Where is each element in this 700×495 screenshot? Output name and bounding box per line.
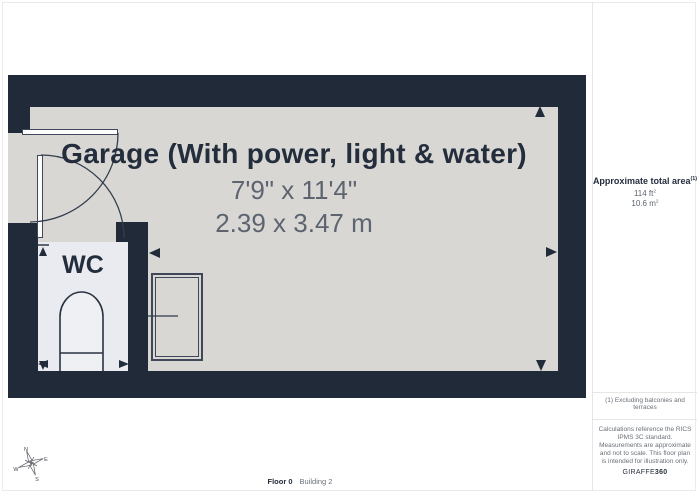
window [151,273,203,361]
footnote-divider-bottom [593,419,697,420]
brand-logo: GIRAFFE360 [592,469,698,476]
room-title: Garage (With power, light & water) [30,138,558,170]
sidebar-divider [592,2,593,491]
floor-label: Floor 0 [268,477,293,486]
wc-label: WC [38,251,128,280]
footnote-divider-top [593,392,697,393]
area-imperial: 114 ft2 [592,189,698,198]
footer: Floor 0 Building 2 [227,477,373,486]
room-dims-imperial: 7'9" x 11'4" [30,175,558,206]
wc-wall-divider [128,242,148,371]
door-lintel [22,129,118,135]
area-metric: 10.6 m2 [592,199,698,208]
floorplan-page: N E S W Garage (With power, light & wate… [0,0,700,495]
wc-wall-left [8,223,38,371]
window-inner-frame [155,277,199,357]
disclaimer-text: Calculations reference the RICS IPMS 3C … [598,426,692,466]
wall-right [558,75,586,398]
area-title-text: Approximate total area [593,176,691,186]
brand-suffix: 360 [655,469,668,476]
door-recess-floor [8,133,30,223]
footnote-text: (1) Excluding balconies and terraces [596,397,694,411]
wall-bottom [8,371,586,398]
area-title-superscript: (1) [690,176,697,182]
wall-left-upper [8,75,30,133]
wall-top [8,75,586,107]
building-label: Building 2 [300,477,333,486]
brand-name: GIRAFFE [622,469,654,476]
area-title: Approximate total area(1) [592,176,698,186]
room-dims-metric: 2.39 x 3.47 m [30,208,558,239]
